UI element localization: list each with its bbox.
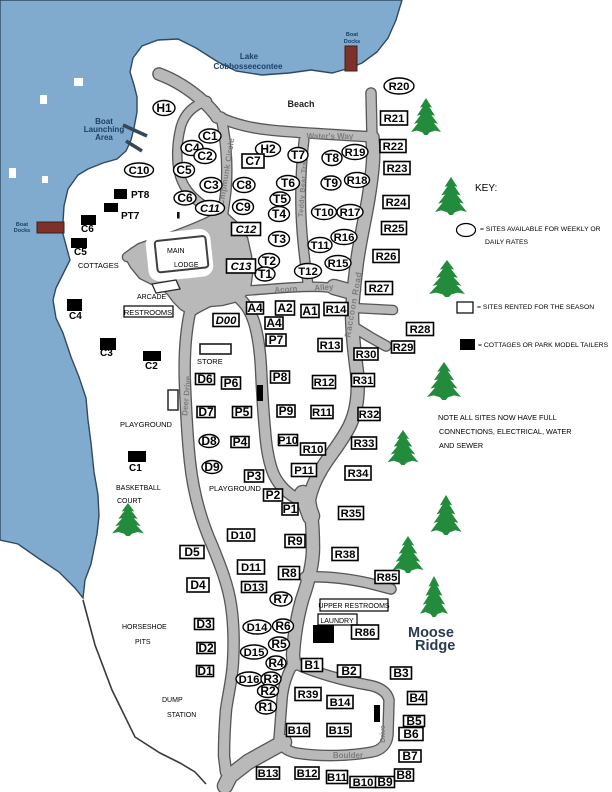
svg-text:C5: C5 xyxy=(74,247,87,258)
svg-text:MAIN: MAIN xyxy=(167,248,185,255)
svg-text:B13: B13 xyxy=(258,768,279,780)
svg-text:T7: T7 xyxy=(291,148,305,162)
svg-text:B11: B11 xyxy=(327,772,347,784)
svg-text:C6: C6 xyxy=(81,224,94,235)
svg-text:R18: R18 xyxy=(347,175,368,187)
svg-text:D8: D8 xyxy=(201,434,217,448)
svg-text:R28: R28 xyxy=(410,324,431,336)
svg-text:B10: B10 xyxy=(353,777,374,789)
svg-text:ARCADE: ARCADE xyxy=(137,294,167,301)
svg-text:C5: C5 xyxy=(176,163,192,177)
svg-text:T9: T9 xyxy=(324,176,338,190)
svg-text:R9: R9 xyxy=(287,534,303,548)
svg-text:R85: R85 xyxy=(377,572,398,584)
svg-text:R1: R1 xyxy=(258,700,274,714)
svg-text:P7: P7 xyxy=(269,333,284,347)
svg-text:B12: B12 xyxy=(297,768,318,780)
svg-text:R10: R10 xyxy=(303,444,324,456)
svg-text:A4: A4 xyxy=(247,301,263,315)
svg-text:C10: C10 xyxy=(129,165,150,177)
svg-text:R24: R24 xyxy=(386,197,407,209)
svg-text:Boat: Boat xyxy=(346,32,358,38)
svg-text:KEY:: KEY: xyxy=(475,183,497,194)
svg-text:R22: R22 xyxy=(383,141,404,153)
svg-text:T1: T1 xyxy=(258,267,272,281)
svg-text:D5: D5 xyxy=(184,545,200,559)
svg-text:B8: B8 xyxy=(396,768,412,782)
svg-text:C3: C3 xyxy=(203,178,219,192)
svg-text:R5: R5 xyxy=(271,637,287,651)
svg-text:AND SEWER: AND SEWER xyxy=(439,441,483,450)
svg-text:CONNECTIONS, ELECTRICAL, WATER: CONNECTIONS, ELECTRICAL, WATER xyxy=(439,427,572,436)
svg-text:UPPER RESTROOMS: UPPER RESTROOMS xyxy=(318,603,390,610)
svg-text:C9: C9 xyxy=(235,200,251,214)
svg-text:T8: T8 xyxy=(325,151,339,165)
svg-text:R17: R17 xyxy=(340,207,361,219)
svg-text:R12: R12 xyxy=(314,377,335,389)
svg-text:Drive: Drive xyxy=(380,725,387,743)
svg-text:NOTE ALL SITES NOW HAVE FULL: NOTE ALL SITES NOW HAVE FULL xyxy=(438,413,557,422)
svg-text:R38: R38 xyxy=(335,549,356,561)
svg-text:R31: R31 xyxy=(353,375,374,387)
svg-text:LAUNDRY: LAUNDRY xyxy=(320,618,354,625)
svg-text:R7: R7 xyxy=(273,592,289,606)
svg-text:D00: D00 xyxy=(216,315,237,327)
svg-text:C8: C8 xyxy=(236,178,252,192)
svg-text:C11: C11 xyxy=(200,203,220,215)
svg-text:R25: R25 xyxy=(384,223,405,235)
svg-text:R2: R2 xyxy=(260,684,276,698)
svg-text:R23: R23 xyxy=(387,163,408,175)
svg-text:A2: A2 xyxy=(277,301,293,315)
svg-text:B7: B7 xyxy=(402,749,418,763)
svg-text:R20: R20 xyxy=(389,81,410,93)
svg-text:C4: C4 xyxy=(69,311,82,322)
svg-text:= SITES RENTED FOR THE SEASON: = SITES RENTED FOR THE SEASON xyxy=(477,304,594,311)
svg-text:R16: R16 xyxy=(334,232,355,244)
svg-text:C13: C13 xyxy=(231,261,252,273)
svg-text:P3: P3 xyxy=(247,469,262,483)
svg-text:A1: A1 xyxy=(302,304,318,318)
svg-text:D14: D14 xyxy=(247,622,268,634)
svg-text:Water's Way: Water's Way xyxy=(307,132,354,141)
svg-text:BASKETBALL: BASKETBALL xyxy=(116,485,161,492)
svg-text:PLAYGROUND: PLAYGROUND xyxy=(120,420,173,429)
svg-text:R15: R15 xyxy=(328,258,349,270)
svg-text:DAILY RATES: DAILY RATES xyxy=(485,239,529,246)
svg-text:R32: R32 xyxy=(359,409,380,421)
svg-text:B15: B15 xyxy=(329,725,350,737)
svg-text:R13: R13 xyxy=(320,340,341,352)
svg-text:R11: R11 xyxy=(312,407,332,419)
svg-text:PT7: PT7 xyxy=(121,211,140,222)
svg-text:D1: D1 xyxy=(197,664,213,678)
svg-text:Beach: Beach xyxy=(287,99,314,109)
svg-text:DUMP: DUMP xyxy=(162,697,183,704)
svg-text:STORE: STORE xyxy=(197,357,223,366)
svg-text:PT8: PT8 xyxy=(131,190,150,201)
svg-text:P6: P6 xyxy=(224,376,239,390)
svg-text:C7: C7 xyxy=(245,154,261,168)
svg-text:R26: R26 xyxy=(376,251,397,263)
svg-text:B6: B6 xyxy=(403,727,419,741)
svg-text:D16: D16 xyxy=(239,674,260,686)
svg-text:B1: B1 xyxy=(304,658,320,672)
svg-text:C1: C1 xyxy=(202,129,218,143)
svg-text:T2: T2 xyxy=(262,254,276,268)
svg-text:R34: R34 xyxy=(348,468,369,480)
svg-text:D3: D3 xyxy=(196,617,212,631)
svg-text:P10: P10 xyxy=(278,435,298,447)
svg-text:P2: P2 xyxy=(266,488,281,502)
svg-text:Cobbosseecontee: Cobbosseecontee xyxy=(214,62,283,71)
svg-text:PITS: PITS xyxy=(135,639,151,646)
svg-text:R35: R35 xyxy=(341,508,362,520)
svg-text:D11: D11 xyxy=(241,562,261,574)
svg-text:R6: R6 xyxy=(275,619,291,633)
svg-text:Ridge: Ridge xyxy=(415,638,455,654)
svg-text:Docks: Docks xyxy=(344,39,361,45)
svg-text:T12: T12 xyxy=(298,266,317,278)
svg-text:R19: R19 xyxy=(345,147,366,159)
svg-text:D7: D7 xyxy=(198,405,214,419)
svg-text:C2: C2 xyxy=(197,149,213,163)
svg-text:Boulder: Boulder xyxy=(333,751,363,760)
svg-text:R14: R14 xyxy=(326,304,347,316)
svg-text:T10: T10 xyxy=(314,207,333,219)
svg-text:R27: R27 xyxy=(369,283,390,295)
svg-text:P11: P11 xyxy=(294,465,313,477)
svg-text:C2: C2 xyxy=(145,361,158,372)
svg-text:= SITES AVAILABLE FOR WEEKLY O: = SITES AVAILABLE FOR WEEKLY OR xyxy=(480,226,601,233)
svg-text:R39: R39 xyxy=(298,689,319,701)
svg-text:B3: B3 xyxy=(393,666,409,680)
svg-text:STATION: STATION xyxy=(167,712,196,719)
svg-text:= COTTAGES OR PARK MODEL TAILE: = COTTAGES OR PARK MODEL TAILERS xyxy=(478,342,609,349)
svg-text:P5: P5 xyxy=(235,405,250,419)
svg-text:RESTROOMS: RESTROOMS xyxy=(124,308,172,317)
svg-text:T3: T3 xyxy=(272,232,286,246)
svg-text:C3: C3 xyxy=(100,348,113,359)
svg-text:A4: A4 xyxy=(266,316,282,330)
svg-text:D13: D13 xyxy=(244,582,265,594)
svg-text:C6: C6 xyxy=(177,191,193,205)
svg-text:D4: D4 xyxy=(190,578,206,592)
svg-text:B5: B5 xyxy=(406,714,422,728)
svg-text:B2: B2 xyxy=(341,664,357,678)
svg-text:PLAYGROUND: PLAYGROUND xyxy=(209,484,262,493)
svg-text:P1: P1 xyxy=(283,502,298,516)
svg-text:R4: R4 xyxy=(268,656,284,670)
svg-text:R33: R33 xyxy=(354,438,375,450)
svg-text:B9: B9 xyxy=(377,775,393,789)
svg-text:R29: R29 xyxy=(393,342,414,354)
svg-text:D15: D15 xyxy=(244,647,265,659)
svg-text:T5: T5 xyxy=(273,192,287,206)
svg-text:Area: Area xyxy=(95,133,113,142)
svg-text:B4: B4 xyxy=(409,691,425,705)
svg-text:Docks: Docks xyxy=(14,228,31,234)
svg-text:P4: P4 xyxy=(233,435,248,449)
svg-text:COTTAGES: COTTAGES xyxy=(78,261,119,270)
svg-text:P9: P9 xyxy=(279,404,294,418)
svg-text:H1: H1 xyxy=(156,101,172,115)
svg-text:Alley: Alley xyxy=(314,282,334,292)
svg-text:R8: R8 xyxy=(281,566,297,580)
svg-text:T6: T6 xyxy=(281,176,295,190)
svg-text:D9: D9 xyxy=(204,460,220,474)
svg-text:COURT: COURT xyxy=(117,498,142,505)
svg-text:T11: T11 xyxy=(311,240,330,252)
svg-text:R30: R30 xyxy=(356,349,377,361)
svg-text:Acorn: Acorn xyxy=(274,284,298,295)
svg-text:D2: D2 xyxy=(198,641,214,655)
svg-text:LODGE: LODGE xyxy=(174,262,199,269)
svg-text:D10: D10 xyxy=(231,530,252,542)
svg-text:C1: C1 xyxy=(129,463,142,474)
svg-text:P8: P8 xyxy=(273,370,288,384)
svg-text:Lake: Lake xyxy=(240,52,259,61)
svg-text:T4: T4 xyxy=(272,207,286,221)
svg-text:HORSESHOE: HORSESHOE xyxy=(122,624,167,631)
svg-text:C12: C12 xyxy=(236,224,257,236)
svg-text:B14: B14 xyxy=(330,697,351,709)
svg-text:B16: B16 xyxy=(288,725,309,737)
svg-text:R21: R21 xyxy=(384,113,405,125)
svg-text:R86: R86 xyxy=(355,627,376,639)
svg-text:D6: D6 xyxy=(197,372,213,386)
